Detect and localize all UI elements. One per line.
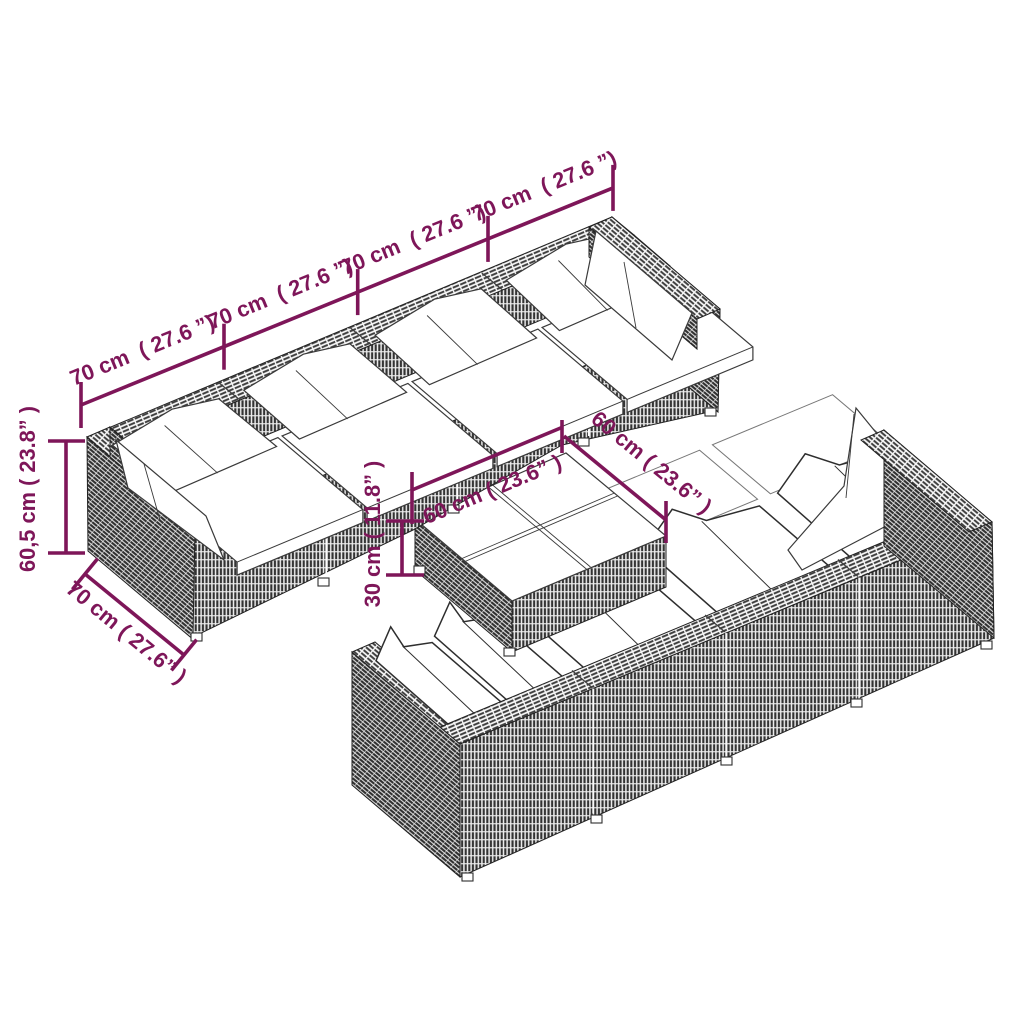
svg-text:30 cm ( 11.8” ): 30 cm ( 11.8” ): [360, 461, 385, 608]
svg-text:60,5 cm ( 23.8” ): 60,5 cm ( 23.8” ): [15, 406, 40, 572]
